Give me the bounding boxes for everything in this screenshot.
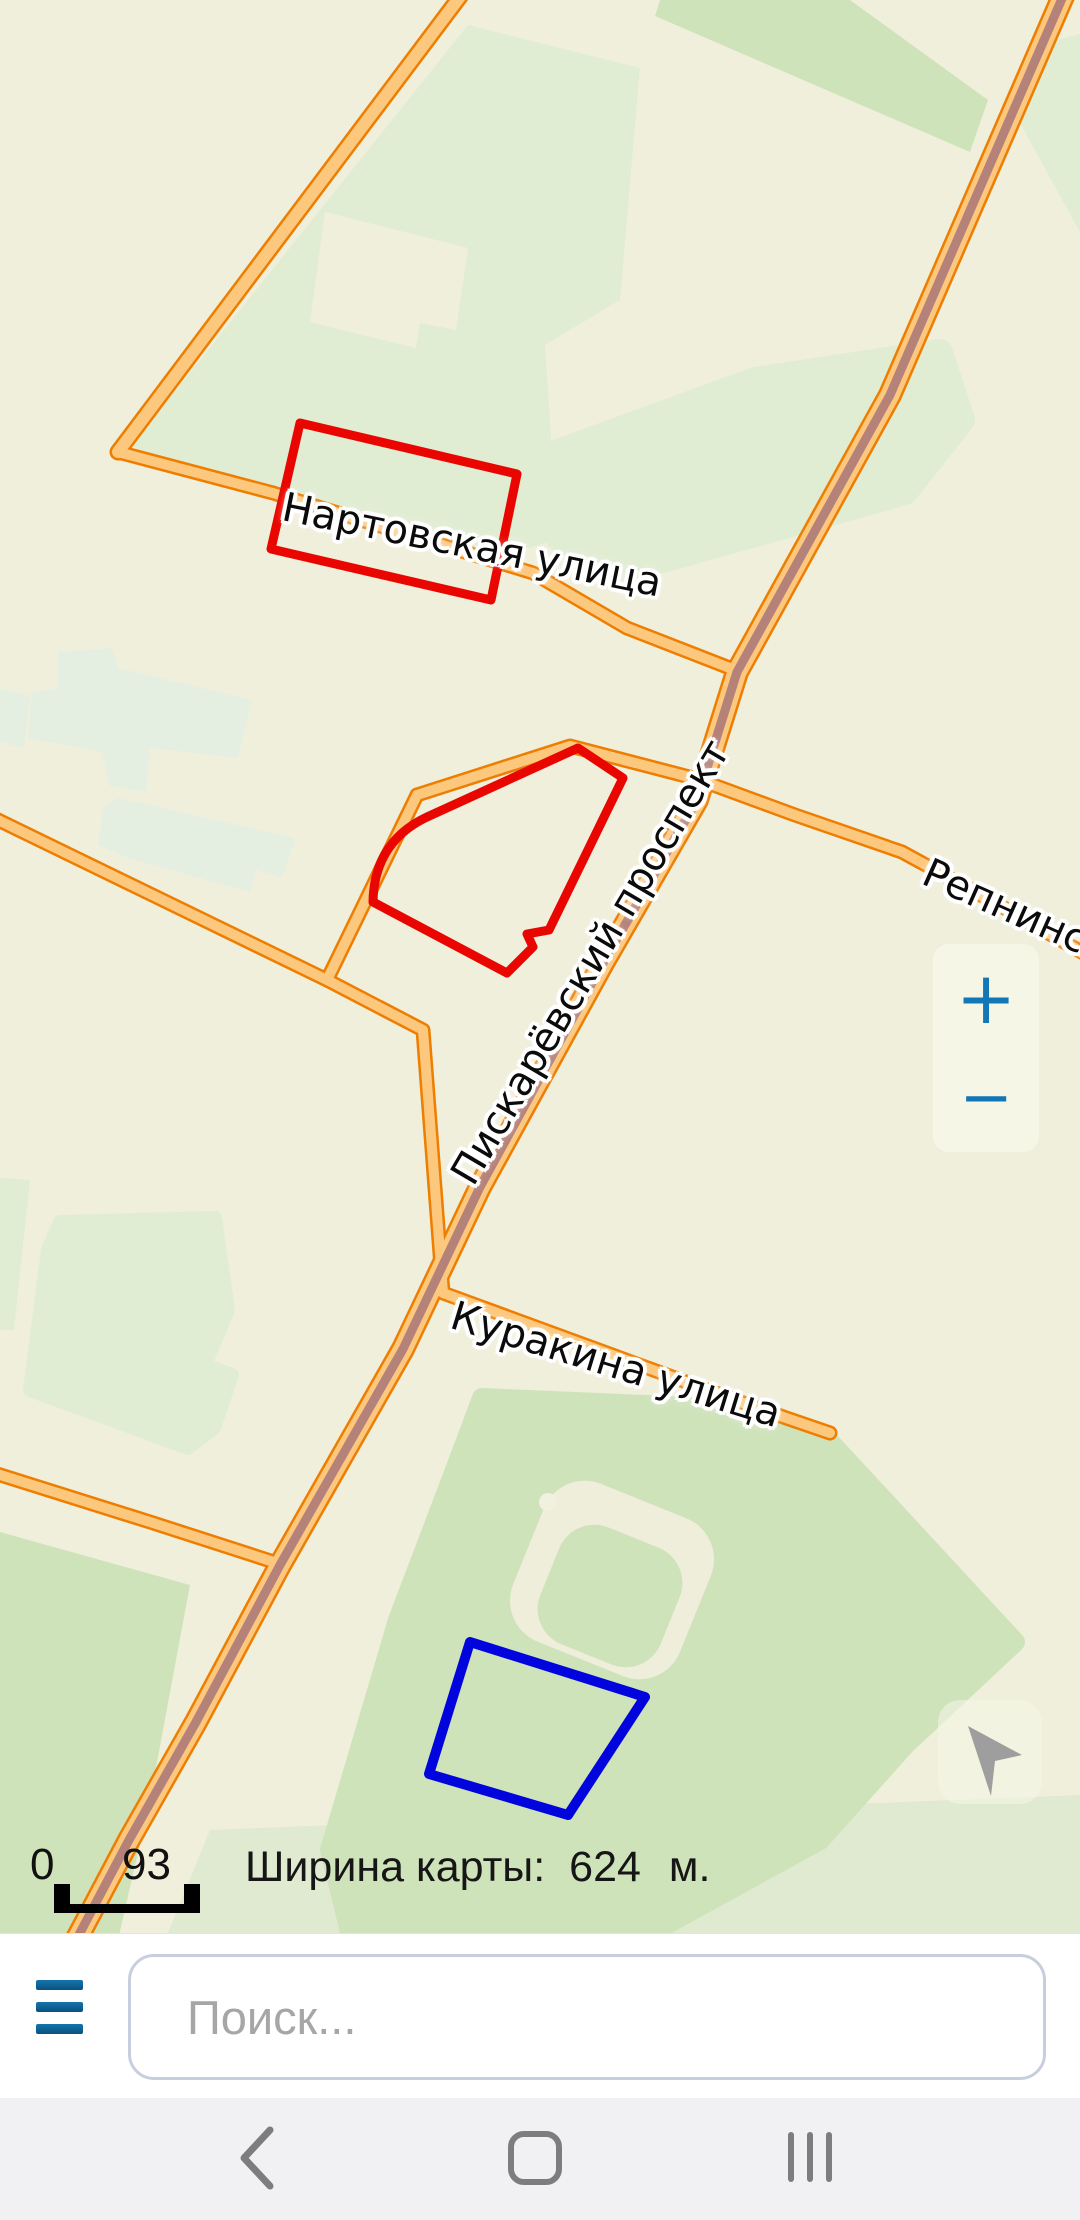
scale-bar (54, 1893, 200, 1913)
map-width-unit: м. (669, 1843, 711, 1891)
recents-icon (788, 2132, 794, 2182)
nav-home-button[interactable] (508, 2128, 568, 2188)
home-icon (508, 2131, 562, 2185)
zoom-control-panel: + − (933, 944, 1039, 1152)
nav-back-button[interactable] (226, 2120, 294, 2196)
scale-bar-start: 0 (30, 1840, 54, 1890)
menu-button[interactable] (36, 1980, 86, 2046)
map-width-readout: Ширина карты:624м. (245, 1843, 710, 1892)
compass-pointer-button[interactable] (938, 1700, 1042, 1804)
map-canvas[interactable] (0, 0, 1080, 1940)
bottom-search-panel (0, 1933, 1080, 2099)
scale-bar-end: 93 (122, 1840, 171, 1890)
nav-recents-button[interactable] (788, 2132, 848, 2184)
map-width-value: 624 (569, 1843, 641, 1891)
zoom-out-button[interactable]: − (933, 1050, 1039, 1146)
pointer-arrow-icon (938, 1700, 1042, 1804)
back-chevron-icon (226, 2120, 294, 2196)
zoom-in-button[interactable]: + (933, 950, 1039, 1046)
map-app-screen: Нартовская улица Пискарёвский проспект К… (0, 0, 1080, 2220)
map-width-label: Ширина карты: (245, 1843, 545, 1891)
android-navigation-bar (0, 2098, 1080, 2220)
search-input[interactable] (128, 1954, 1046, 2080)
hamburger-icon (36, 1980, 86, 2034)
